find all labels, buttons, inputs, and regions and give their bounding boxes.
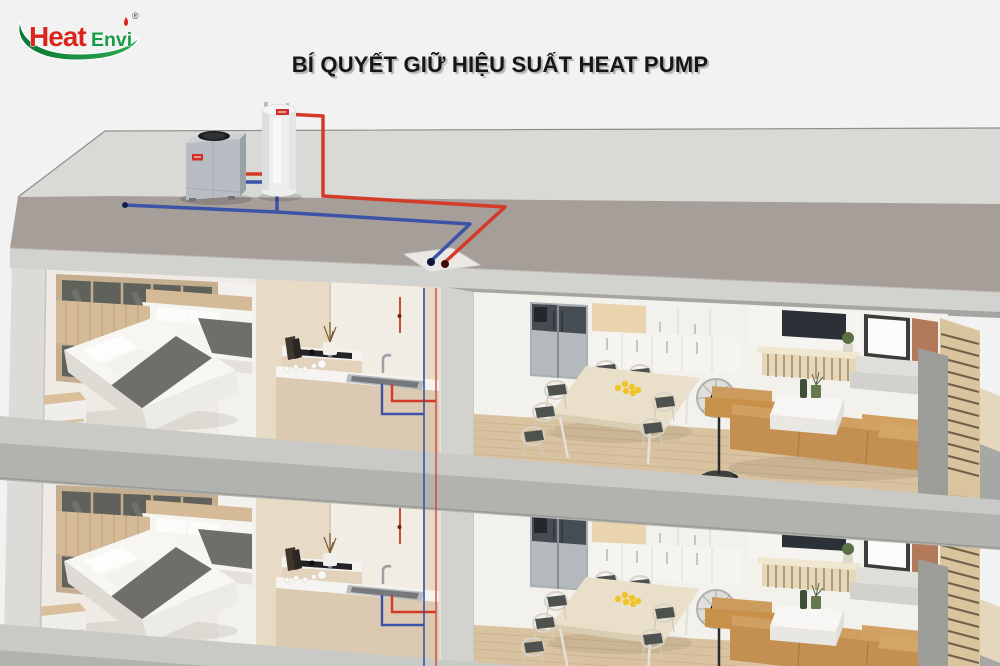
- roof-parapet: [18, 128, 1000, 204]
- hot-roof-penetration: [441, 260, 449, 268]
- logo-text-envi: Envi: [91, 29, 132, 51]
- building-cutaway-illustration: [0, 0, 1000, 666]
- cold-roof-penetration: [427, 258, 435, 266]
- cold-pipe-end-fitting: [122, 202, 128, 208]
- hot-water-tank: [258, 102, 302, 202]
- logo-text-heat: Heat: [29, 21, 86, 52]
- logo-flame-icon: [124, 17, 128, 26]
- brand-logo: Heat Envi ®: [13, 5, 143, 65]
- heat-pump-unit: [180, 131, 252, 205]
- logo-registered-mark: ®: [132, 11, 139, 21]
- poster-canvas: BÍ QUYẾT GIỮ HIỆU SUẤT HEAT PUMP Heat En…: [0, 0, 1000, 666]
- brand-logo-art: Heat Envi ®: [13, 5, 143, 65]
- headline: BÍ QUYẾT GIỮ HIỆU SUẤT HEAT PUMP: [0, 52, 1000, 78]
